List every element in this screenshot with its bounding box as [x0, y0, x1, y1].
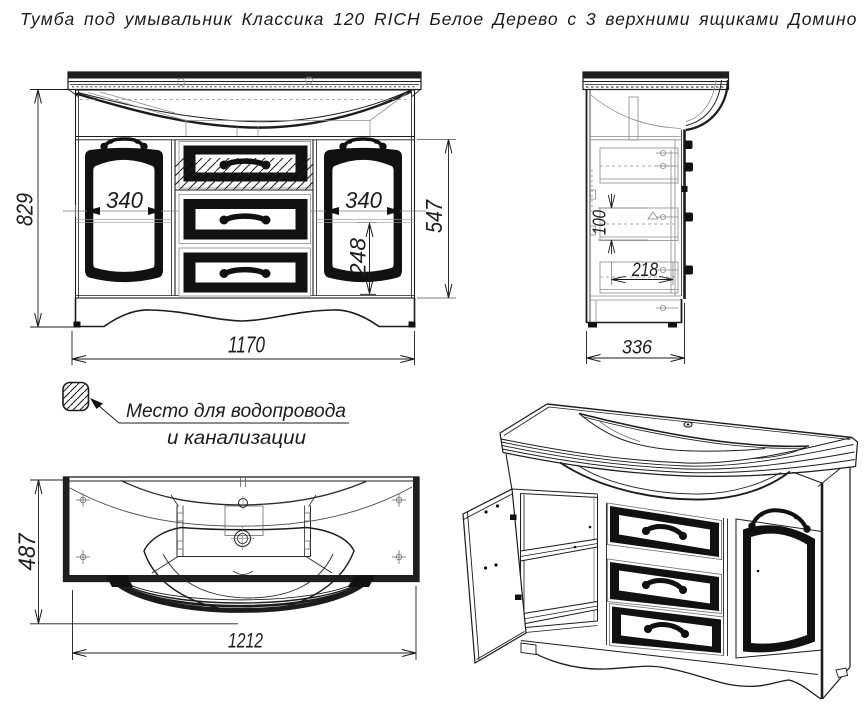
- svg-text:547: 547: [421, 199, 447, 233]
- svg-text:100: 100: [590, 210, 610, 235]
- svg-text:336: 336: [622, 337, 652, 359]
- svg-text:и канализации: и канализации: [167, 428, 306, 449]
- svg-text:1212: 1212: [228, 630, 263, 653]
- svg-text:487: 487: [14, 532, 41, 571]
- svg-text:340: 340: [106, 187, 143, 213]
- svg-text:248: 248: [346, 237, 371, 277]
- svg-text:Тумба под умывальник Классика: Тумба под умывальник Классика 120 RICH Б…: [20, 9, 857, 29]
- svg-text:829: 829: [12, 193, 38, 226]
- svg-text:218: 218: [631, 259, 658, 281]
- svg-text:1170: 1170: [228, 332, 265, 358]
- svg-text:340: 340: [345, 187, 382, 213]
- svg-text:Место для водопровода: Место для водопровода: [126, 401, 346, 422]
